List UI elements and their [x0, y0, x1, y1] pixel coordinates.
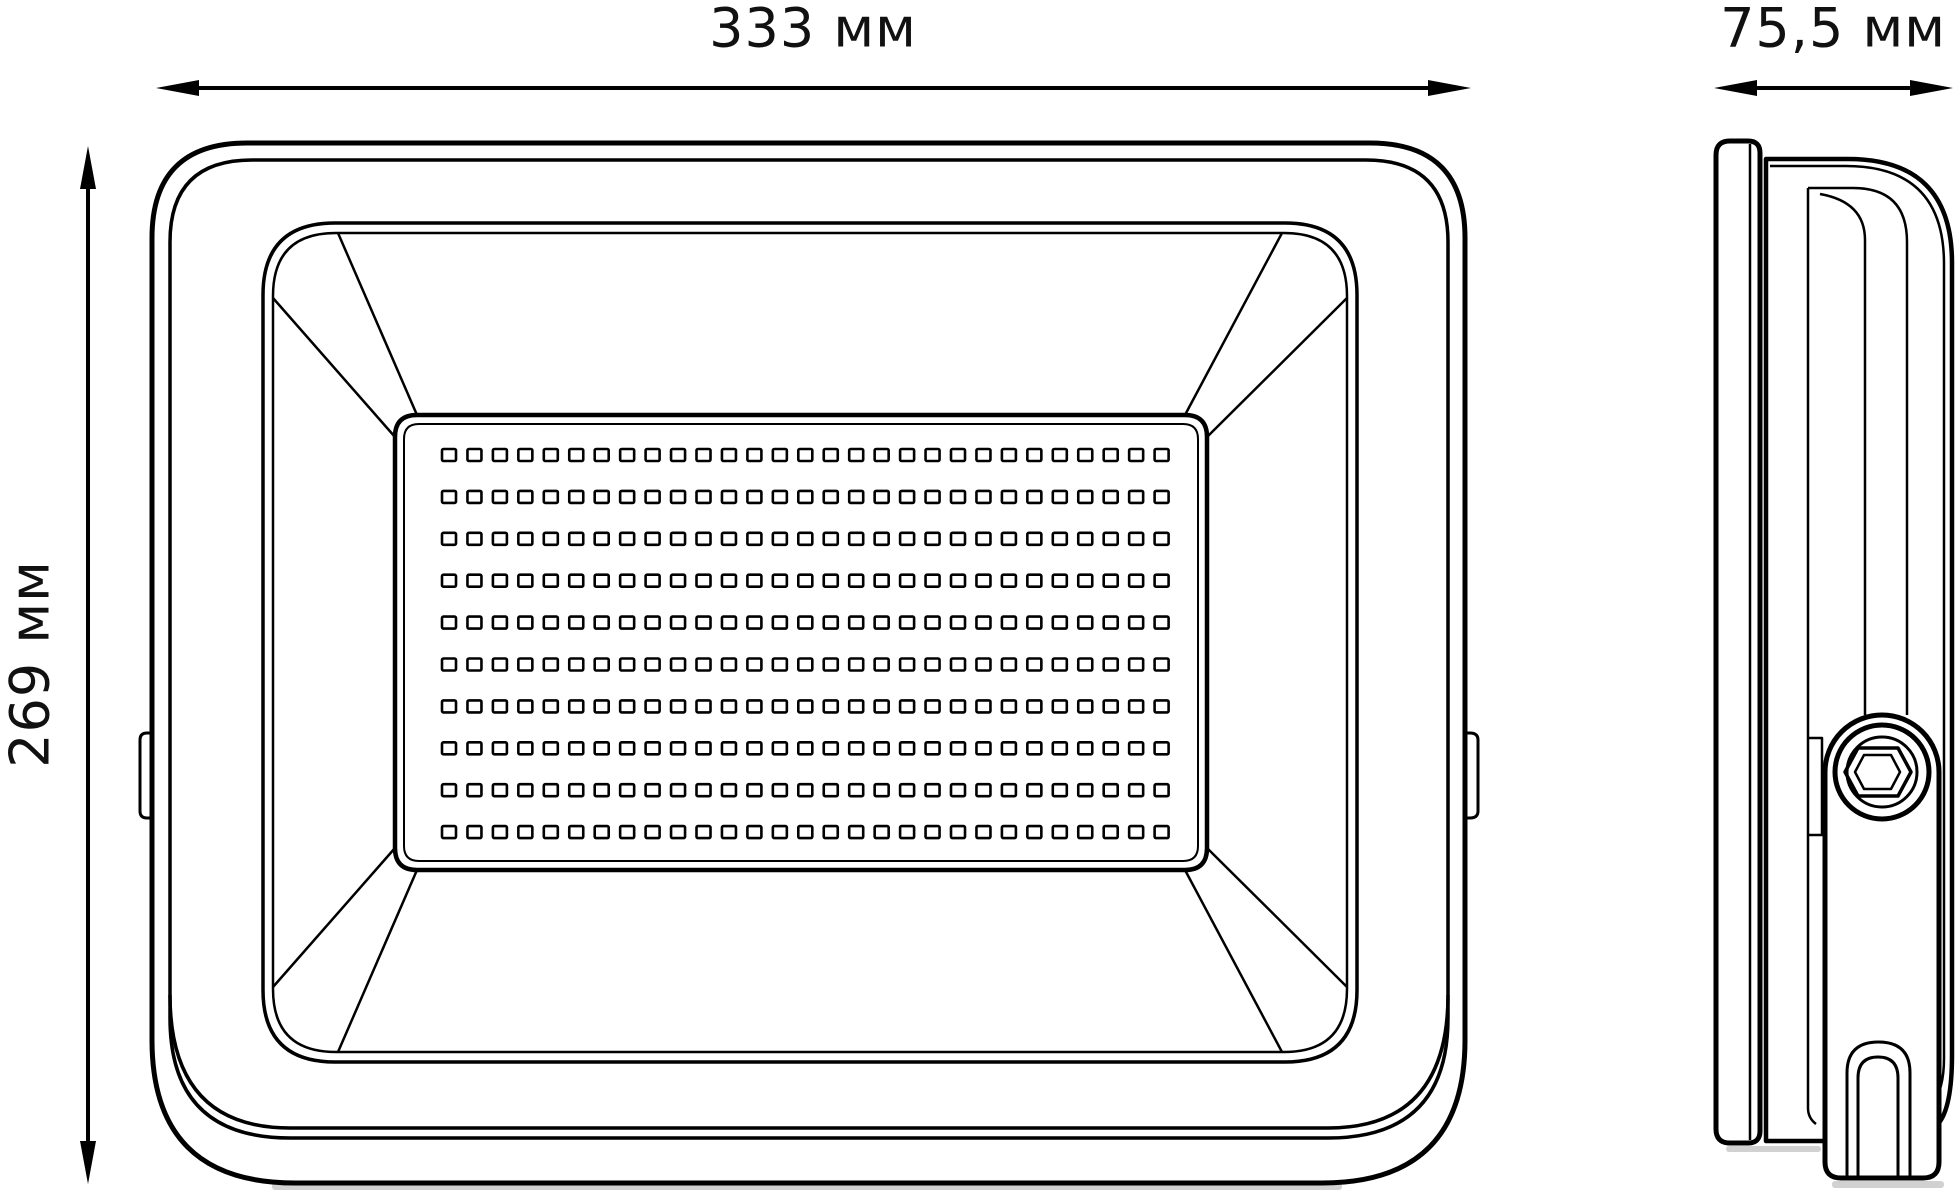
- led-chip: [1155, 700, 1169, 712]
- led-chip: [1053, 659, 1067, 671]
- led-chip: [518, 826, 532, 838]
- led-chip: [518, 533, 532, 545]
- led-chip: [595, 700, 609, 712]
- led-chip: [722, 575, 736, 587]
- led-chip: [620, 659, 634, 671]
- led-chip: [951, 533, 965, 545]
- led-chip: [1155, 659, 1169, 671]
- led-chip: [467, 575, 481, 587]
- led-chip: [620, 449, 634, 461]
- led-chip: [1129, 659, 1143, 671]
- led-chip: [926, 449, 940, 461]
- led-chip: [824, 449, 838, 461]
- led-chip: [518, 491, 532, 503]
- led-chip: [1129, 533, 1143, 545]
- reflector-facet-lines: [273, 233, 1347, 1052]
- led-chip: [493, 617, 507, 629]
- led-chip: [875, 449, 889, 461]
- led-chip: [442, 700, 456, 712]
- led-chip: [1078, 659, 1092, 671]
- led-chip: [544, 449, 558, 461]
- led-chip: [722, 533, 736, 545]
- led-chip: [493, 575, 507, 587]
- led-chip: [951, 700, 965, 712]
- led-chip: [620, 617, 634, 629]
- led-chip: [875, 659, 889, 671]
- led-chip: [900, 700, 914, 712]
- led-chip: [773, 784, 787, 796]
- led-chip: [544, 826, 558, 838]
- side-shadow: [1726, 1146, 1821, 1152]
- led-chip: [1104, 617, 1118, 629]
- led-chip: [773, 826, 787, 838]
- led-chip: [1155, 826, 1169, 838]
- led-chip: [646, 617, 660, 629]
- arrow-left-icon: [1714, 80, 1757, 96]
- led-chip: [747, 575, 761, 587]
- led-chip: [518, 575, 532, 587]
- led-chip: [900, 533, 914, 545]
- led-chip: [849, 826, 863, 838]
- led-chip: [1053, 742, 1067, 754]
- led-chip: [875, 491, 889, 503]
- led-chip: [722, 659, 736, 671]
- led-chip: [1129, 617, 1143, 629]
- led-chip: [773, 575, 787, 587]
- led-chip: [442, 826, 456, 838]
- led-chip: [1078, 449, 1092, 461]
- led-chip: [1078, 617, 1092, 629]
- led-chip: [697, 659, 711, 671]
- dimension-height: [80, 146, 96, 1184]
- led-chip: [569, 826, 583, 838]
- led-grid: [442, 449, 1169, 838]
- led-chip: [824, 826, 838, 838]
- led-chip: [976, 449, 990, 461]
- arrow-left-icon: [156, 80, 199, 96]
- led-chip: [569, 659, 583, 671]
- led-chip: [951, 742, 965, 754]
- led-chip: [1078, 742, 1092, 754]
- led-chip: [926, 575, 940, 587]
- led-chip: [569, 449, 583, 461]
- reflector-opening-outer: [263, 223, 1357, 1062]
- led-chip: [620, 533, 634, 545]
- led-chip: [544, 617, 558, 629]
- led-chip: [849, 659, 863, 671]
- led-chip: [747, 491, 761, 503]
- led-chip: [1129, 700, 1143, 712]
- led-chip: [1129, 491, 1143, 503]
- led-chip: [493, 700, 507, 712]
- led-chip: [1027, 826, 1041, 838]
- led-chip: [569, 617, 583, 629]
- led-chip: [849, 784, 863, 796]
- led-chip: [747, 784, 761, 796]
- led-chip: [697, 742, 711, 754]
- led-chip: [671, 617, 685, 629]
- led-chip: [671, 449, 685, 461]
- led-chip: [798, 700, 812, 712]
- led-chip: [1104, 449, 1118, 461]
- led-chip: [544, 700, 558, 712]
- led-chip: [722, 826, 736, 838]
- led-chip: [722, 617, 736, 629]
- led-chip: [1027, 659, 1041, 671]
- led-chip: [671, 700, 685, 712]
- led-chip: [824, 617, 838, 629]
- led-chip: [1104, 826, 1118, 838]
- led-chip: [646, 826, 660, 838]
- led-chip: [1078, 700, 1092, 712]
- led-chip: [595, 449, 609, 461]
- led-chip: [875, 826, 889, 838]
- led-chip: [824, 659, 838, 671]
- led-chip: [875, 700, 889, 712]
- led-chip: [467, 449, 481, 461]
- led-chip: [697, 575, 711, 587]
- led-chip: [544, 659, 558, 671]
- led-chip: [1155, 617, 1169, 629]
- led-chip: [798, 533, 812, 545]
- led-chip: [722, 700, 736, 712]
- led-chip: [595, 826, 609, 838]
- led-chip: [951, 784, 965, 796]
- led-chip: [442, 491, 456, 503]
- led-chip: [1129, 784, 1143, 796]
- led-chip: [1027, 533, 1041, 545]
- led-chip: [620, 826, 634, 838]
- led-chip: [951, 491, 965, 503]
- led-chip: [518, 617, 532, 629]
- led-chip: [875, 533, 889, 545]
- led-chip: [646, 533, 660, 545]
- led-chip: [671, 659, 685, 671]
- led-chip: [671, 784, 685, 796]
- led-chip: [900, 826, 914, 838]
- led-chip: [1155, 784, 1169, 796]
- led-chip: [875, 617, 889, 629]
- depth-dimension-label: 75,5 мм: [1720, 0, 1946, 60]
- led-chip: [467, 784, 481, 796]
- led-chip: [900, 742, 914, 754]
- led-chip: [926, 742, 940, 754]
- led-chip: [1002, 700, 1016, 712]
- led-chip: [697, 784, 711, 796]
- led-chip: [951, 826, 965, 838]
- led-chip: [1053, 784, 1067, 796]
- led-chip: [976, 659, 990, 671]
- led-chip: [1078, 575, 1092, 587]
- bracket-shadow: [1832, 1181, 1944, 1188]
- led-chip: [747, 533, 761, 545]
- led-chip: [798, 742, 812, 754]
- led-chip: [849, 700, 863, 712]
- led-chip: [646, 449, 660, 461]
- led-chip: [569, 742, 583, 754]
- led-chip: [493, 742, 507, 754]
- led-chip: [467, 742, 481, 754]
- led-chip: [595, 617, 609, 629]
- led-chip: [875, 575, 889, 587]
- led-chip: [518, 659, 532, 671]
- led-chip: [467, 826, 481, 838]
- led-chip: [722, 784, 736, 796]
- led-chip: [747, 700, 761, 712]
- led-chip: [442, 533, 456, 545]
- led-chip: [442, 784, 456, 796]
- led-chip: [569, 575, 583, 587]
- led-chip: [849, 575, 863, 587]
- led-chip: [646, 700, 660, 712]
- led-chip: [1129, 575, 1143, 587]
- side-view: [1716, 141, 1952, 1188]
- led-chip: [467, 617, 481, 629]
- led-chip: [1155, 742, 1169, 754]
- led-chip: [1129, 826, 1143, 838]
- led-chip: [798, 617, 812, 629]
- led-chip: [747, 617, 761, 629]
- led-chip: [1155, 533, 1169, 545]
- led-chip: [1002, 449, 1016, 461]
- led-chip: [951, 575, 965, 587]
- led-chip: [1078, 784, 1092, 796]
- led-chip: [697, 700, 711, 712]
- led-chip: [798, 449, 812, 461]
- led-chip: [595, 491, 609, 503]
- led-chip: [900, 449, 914, 461]
- led-chip: [442, 617, 456, 629]
- drawing-svg: [0, 0, 1960, 1192]
- led-chip: [493, 449, 507, 461]
- led-chip: [544, 491, 558, 503]
- led-chip: [1104, 742, 1118, 754]
- led-chip: [849, 617, 863, 629]
- led-chip: [976, 742, 990, 754]
- led-chip: [1002, 742, 1016, 754]
- led-chip: [976, 784, 990, 796]
- led-chip: [646, 784, 660, 796]
- led-chip: [798, 575, 812, 587]
- led-chip: [1002, 617, 1016, 629]
- led-chip: [926, 659, 940, 671]
- led-chip: [1002, 826, 1016, 838]
- front-view: [140, 143, 1478, 1190]
- led-chip: [773, 700, 787, 712]
- led-chip: [671, 533, 685, 545]
- led-chip: [518, 449, 532, 461]
- led-chip: [926, 491, 940, 503]
- led-chip: [442, 742, 456, 754]
- led-chip: [824, 491, 838, 503]
- led-chip: [747, 449, 761, 461]
- led-chip: [773, 617, 787, 629]
- led-chip: [798, 659, 812, 671]
- led-chip: [595, 659, 609, 671]
- led-chip: [1155, 575, 1169, 587]
- led-chip: [620, 700, 634, 712]
- dimension-width: [156, 80, 1471, 96]
- led-chip: [1053, 700, 1067, 712]
- technical-drawing: 333 мм 269 мм 75,5 мм: [0, 0, 1960, 1192]
- led-chip: [620, 784, 634, 796]
- dimension-depth: [1714, 80, 1953, 96]
- led-chip: [747, 826, 761, 838]
- led-chip: [722, 491, 736, 503]
- led-chip: [646, 659, 660, 671]
- led-chip: [442, 449, 456, 461]
- led-chip: [875, 742, 889, 754]
- led-chip: [493, 784, 507, 796]
- led-chip: [569, 700, 583, 712]
- led-chip: [900, 617, 914, 629]
- led-chip: [697, 449, 711, 461]
- led-chip: [1053, 826, 1067, 838]
- led-chip: [926, 784, 940, 796]
- led-chip: [493, 659, 507, 671]
- arrow-down-icon: [80, 1141, 96, 1184]
- led-chip: [1129, 742, 1143, 754]
- led-chip: [900, 491, 914, 503]
- led-chip: [1104, 533, 1118, 545]
- led-chip: [1053, 533, 1067, 545]
- led-chip: [976, 575, 990, 587]
- led-chip: [544, 742, 558, 754]
- led-chip: [926, 826, 940, 838]
- led-chip: [798, 826, 812, 838]
- led-chip: [900, 575, 914, 587]
- led-chip: [620, 742, 634, 754]
- led-chip: [773, 449, 787, 461]
- led-chip: [926, 700, 940, 712]
- led-chip: [646, 575, 660, 587]
- led-chip: [1027, 449, 1041, 461]
- led-chip: [1078, 533, 1092, 545]
- arrow-right-icon: [1428, 80, 1471, 96]
- led-chip: [1155, 491, 1169, 503]
- led-chip: [951, 659, 965, 671]
- reflector-opening-inner: [273, 233, 1347, 1052]
- led-chip: [951, 449, 965, 461]
- led-chip: [671, 742, 685, 754]
- led-chip: [595, 742, 609, 754]
- led-chip: [620, 575, 634, 587]
- led-chip: [1027, 700, 1041, 712]
- led-chip: [824, 533, 838, 545]
- led-chip: [595, 533, 609, 545]
- led-chip: [1078, 826, 1092, 838]
- led-chip: [595, 784, 609, 796]
- led-chip: [595, 575, 609, 587]
- width-dimension-label: 333 мм: [709, 0, 917, 60]
- led-chip: [1104, 784, 1118, 796]
- led-chip: [773, 659, 787, 671]
- led-chip: [544, 784, 558, 796]
- led-chip: [569, 491, 583, 503]
- led-chip: [773, 533, 787, 545]
- led-chip: [518, 700, 532, 712]
- led-chip: [697, 826, 711, 838]
- bolt-outer-circle: [1835, 725, 1929, 819]
- led-chip: [442, 659, 456, 671]
- led-chip: [1002, 784, 1016, 796]
- led-chip: [976, 826, 990, 838]
- led-chip: [1129, 449, 1143, 461]
- led-chip: [976, 617, 990, 629]
- led-chip: [467, 659, 481, 671]
- led-chip: [1002, 491, 1016, 503]
- led-chip: [518, 784, 532, 796]
- led-chip: [900, 784, 914, 796]
- side-front-bezel: [1716, 141, 1760, 1143]
- led-chip: [1104, 659, 1118, 671]
- arrow-up-icon: [80, 146, 96, 189]
- led-chip: [849, 449, 863, 461]
- arrow-right-icon: [1910, 80, 1953, 96]
- led-chip: [849, 533, 863, 545]
- led-chip: [1053, 575, 1067, 587]
- led-chip: [976, 491, 990, 503]
- led-chip: [824, 742, 838, 754]
- led-chip: [824, 784, 838, 796]
- led-chip: [697, 491, 711, 503]
- led-chip: [875, 784, 889, 796]
- led-chip: [1078, 491, 1092, 503]
- led-chip: [671, 826, 685, 838]
- led-panel-outer: [395, 415, 1207, 870]
- led-chip: [569, 533, 583, 545]
- led-chip: [1027, 617, 1041, 629]
- led-chip: [849, 742, 863, 754]
- led-chip: [697, 617, 711, 629]
- led-chip: [976, 700, 990, 712]
- led-chip: [747, 742, 761, 754]
- led-chip: [1027, 742, 1041, 754]
- led-chip: [493, 491, 507, 503]
- led-chip: [849, 491, 863, 503]
- led-chip: [442, 575, 456, 587]
- led-chip: [1104, 491, 1118, 503]
- led-chip: [824, 575, 838, 587]
- led-chip: [722, 449, 736, 461]
- led-chip: [1002, 659, 1016, 671]
- led-chip: [1053, 491, 1067, 503]
- led-chip: [951, 617, 965, 629]
- led-chip: [798, 784, 812, 796]
- led-chip: [1155, 449, 1169, 461]
- led-chip: [926, 533, 940, 545]
- led-chip: [467, 491, 481, 503]
- led-chip: [544, 575, 558, 587]
- led-chip: [1002, 575, 1016, 587]
- led-chip: [544, 533, 558, 545]
- front-inner-frame: [170, 160, 1448, 1138]
- led-chip: [1104, 700, 1118, 712]
- led-chip: [824, 700, 838, 712]
- led-chip: [697, 533, 711, 545]
- led-chip: [671, 575, 685, 587]
- led-chip: [773, 491, 787, 503]
- led-chip: [671, 491, 685, 503]
- led-chip: [493, 826, 507, 838]
- led-chip: [1053, 617, 1067, 629]
- led-chip: [1053, 449, 1067, 461]
- led-chip: [467, 700, 481, 712]
- led-chip: [926, 617, 940, 629]
- led-chip: [1002, 533, 1016, 545]
- led-chip: [1027, 575, 1041, 587]
- led-chip: [646, 742, 660, 754]
